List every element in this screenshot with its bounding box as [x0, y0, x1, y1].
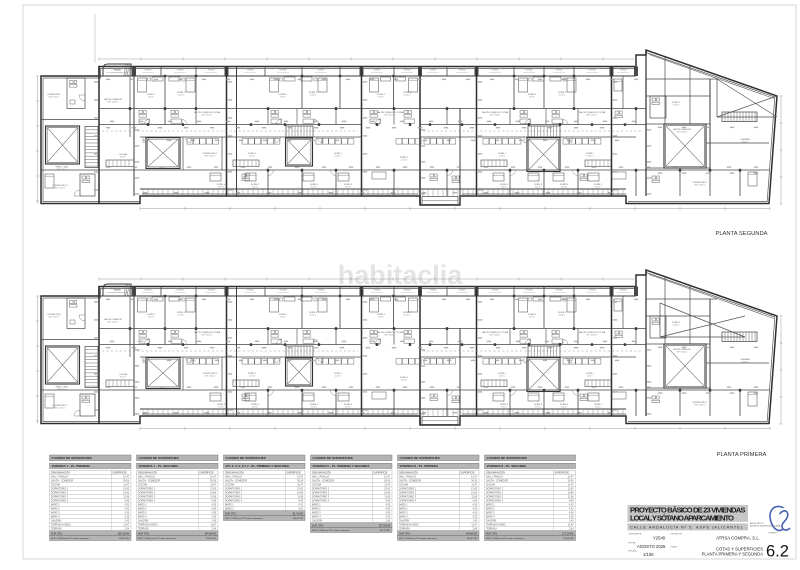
svg-text:18.20 m²: 18.20 m²	[742, 141, 749, 144]
svg-text:SUP: 11.20 m²: SUP: 11.20 m²	[49, 96, 60, 99]
svg-text:COCINA: COCINA	[399, 484, 409, 487]
svg-text:BAÑO 4: BAÑO 4	[312, 516, 321, 519]
svg-text:DORMITORIO 1: DORMITORIO 1	[486, 489, 504, 491]
svg-text:DORMITORIO 2: DORMITORIO 2	[486, 493, 504, 495]
svg-text:1.45: 1.45	[385, 521, 390, 523]
svg-text:SUP. ÚTIL: SUP. ÚTIL	[138, 532, 150, 535]
svg-text:12.47: 12.47	[210, 477, 217, 479]
svg-text:12.10 m²: 12.10 m²	[335, 155, 342, 158]
svg-text:GALERÍA: GALERÍA	[138, 520, 149, 523]
svg-text:SUP. CONS (con P.P. zonas comu: SUP. CONS (con P.P. zonas comunes)	[225, 518, 263, 520]
svg-text:GALERÍA: GALERÍA	[399, 520, 410, 523]
svg-text:11.47: 11.47	[384, 485, 390, 487]
svg-text:SUP. CONS (con P.P. zonas comu: SUP. CONS (con P.P. zonas comunes)	[138, 538, 176, 540]
svg-text:DORMITORIO 2: DORMITORIO 2	[51, 493, 69, 495]
svg-text:13.63: 13.63	[123, 489, 130, 491]
svg-text:BAÑO 2: BAÑO 2	[51, 508, 60, 511]
svg-text:BAÑO 3: BAÑO 3	[312, 512, 321, 515]
svg-text:10.66: 10.66	[123, 493, 130, 495]
svg-text:SALÓN COMEDOR: SALÓN COMEDOR	[673, 128, 691, 131]
svg-text:2.04: 2.04	[472, 529, 477, 531]
svg-text:9.20 m²: 9.20 m²	[501, 186, 507, 189]
svg-text:36.26: 36.26	[568, 481, 575, 483]
svg-text:BAÑO 1: BAÑO 1	[51, 504, 60, 507]
svg-text:DORMITORIO 2: DORMITORIO 2	[225, 493, 243, 495]
svg-text:DENOMINACIÓN: DENOMINACIÓN	[225, 472, 244, 475]
svg-text:9.20 m²: 9.20 m²	[311, 186, 317, 189]
svg-text:10.66: 10.66	[568, 493, 575, 495]
svg-text:4.35: 4.35	[211, 505, 216, 507]
svg-text:SUP: 26.40 m²: SUP: 26.40 m²	[676, 131, 688, 134]
svg-text:SALÓN - COMEDOR: SALÓN - COMEDOR	[312, 480, 334, 483]
svg-text:1.45: 1.45	[211, 521, 216, 523]
svg-text:9.45: 9.45	[472, 501, 477, 503]
svg-text:HALL / PASILLO: HALL / PASILLO	[486, 476, 503, 479]
svg-text:SUP. ÚTIL: SUP. ÚTIL	[486, 532, 498, 535]
svg-text:DORMITORIO 3: DORMITORIO 3	[399, 497, 417, 499]
svg-text:4.20: 4.20	[211, 509, 216, 511]
svg-text:SALÓN - COMEDOR: SALÓN - COMEDOR	[399, 480, 421, 483]
svg-text:NÚMERO: NÚMERO	[769, 532, 778, 535]
svg-text:4.35: 4.35	[472, 505, 477, 507]
svg-text:SUP: 24.30 m²: SUP: 24.30 m²	[107, 101, 119, 104]
svg-text:DORMITORIO 3: DORMITORIO 3	[225, 497, 243, 499]
svg-text:13.63: 13.63	[568, 489, 575, 491]
svg-text:4.36: 4.36	[569, 513, 574, 515]
svg-text:SUPERFICIE: SUPERFICIE	[373, 472, 388, 475]
svg-text:DORMITORIO 2: DORMITORIO 2	[312, 493, 330, 495]
svg-text:13.63: 13.63	[210, 489, 217, 491]
svg-text:DENOMINACIÓN: DENOMINACIÓN	[312, 472, 331, 475]
svg-text:BAÑO 2: BAÑO 2	[225, 508, 234, 511]
svg-text:TERRAZA: TERRAZA	[51, 528, 62, 531]
svg-text:BAÑO 2: BAÑO 2	[399, 508, 408, 511]
svg-text:12.47: 12.47	[471, 477, 478, 479]
svg-text:DENOMINACIÓN: DENOMINACIÓN	[51, 472, 70, 475]
svg-text:36.26: 36.26	[471, 481, 478, 483]
svg-text:11.87: 11.87	[210, 525, 216, 527]
svg-text:9.45: 9.45	[385, 501, 390, 503]
svg-text:BAÑO 3: BAÑO 3	[486, 512, 495, 515]
svg-text:106.92 M2: 106.92 M2	[293, 518, 304, 520]
svg-text:Y2540: Y2540	[653, 535, 666, 540]
svg-text:BAÑO 1: BAÑO 1	[312, 504, 321, 507]
svg-text:3.25: 3.25	[472, 517, 477, 519]
svg-text:11.08: 11.08	[210, 497, 216, 499]
svg-text:4.36: 4.36	[124, 513, 129, 515]
svg-text:4.35: 4.35	[385, 505, 390, 507]
svg-text:AGOSTO 2025: AGOSTO 2025	[637, 544, 666, 549]
svg-text:CUADRO DE SUPERFICIES: CUADRO DE SUPERFICIES	[487, 456, 527, 460]
svg-text:GALERÍA: GALERÍA	[51, 520, 62, 523]
svg-text:4.35: 4.35	[569, 505, 574, 507]
svg-text:BAÑO 3: BAÑO 3	[51, 512, 60, 515]
svg-text:36.26: 36.26	[210, 481, 217, 483]
svg-text:9.80 m²: 9.80 m²	[529, 96, 535, 99]
svg-text:DORMITORIO 1: DORMITORIO 1	[312, 489, 330, 491]
svg-text:9.80 m²: 9.80 m²	[280, 96, 286, 99]
svg-text:habitaclia: habitaclia	[338, 260, 464, 290]
svg-text:HALL / PASILLO: HALL / PASILLO	[399, 476, 416, 479]
svg-text:4.20: 4.20	[569, 509, 574, 511]
svg-text:4.36: 4.36	[472, 513, 477, 515]
svg-text:11.87: 11.87	[471, 525, 477, 527]
svg-text:AGUSTÍN RODRÍGUEZ OCAÑA: AGUSTÍN RODRÍGUEZ OCAÑA	[750, 525, 781, 528]
svg-text:PROMOTOR: PROMOTOR	[671, 534, 683, 536]
svg-text:SUP: 12.40 m²: SUP: 12.40 m²	[204, 155, 216, 158]
svg-text:VIVIENDA 1 - PL. SEGUNDA: VIVIENDA 1 - PL. SEGUNDA	[139, 464, 180, 468]
svg-text:ARQUITECTO: ARQUITECTO	[750, 522, 764, 525]
svg-text:9.45: 9.45	[211, 501, 216, 503]
svg-text:CUADRO DE SUPERFICIES: CUADRO DE SUPERFICIES	[226, 456, 266, 460]
svg-text:TERRAZA A DESC.: TERRAZA A DESC.	[399, 524, 420, 527]
svg-text:SUP. CONS (con P.P. zonas comu: SUP. CONS (con P.P. zonas comunes)	[486, 538, 524, 540]
svg-text:1.45: 1.45	[472, 521, 477, 523]
svg-text:SUP: 27.60 m²: SUP: 27.60 m²	[586, 114, 598, 117]
svg-text:SUP. ÚTIL: SUP. ÚTIL	[312, 524, 324, 527]
svg-text:9.45: 9.45	[298, 501, 303, 503]
svg-text:10.66: 10.66	[471, 493, 478, 495]
svg-text:LOCAL Y SÓTANO APARCAMIENTO: LOCAL Y SÓTANO APARCAMIENTO	[630, 514, 734, 523]
svg-text:12.47: 12.47	[384, 477, 391, 479]
svg-text:DORMITORIO 3: DORMITORIO 3	[312, 497, 330, 499]
svg-text:9.20 m²: 9.20 m²	[561, 186, 567, 189]
svg-text:SUPERFICIE: SUPERFICIE	[286, 472, 301, 475]
svg-text:81.43 M2: 81.43 M2	[293, 512, 304, 515]
svg-text:CUADRO DE SUPERFICIES: CUADRO DE SUPERFICIES	[139, 456, 179, 460]
svg-text:DORMITORIO 4: DORMITORIO 4	[225, 501, 243, 503]
svg-text:BAÑO 4: BAÑO 4	[399, 516, 408, 519]
svg-text:4.20: 4.20	[385, 509, 390, 511]
svg-text:4.20: 4.20	[472, 509, 477, 511]
svg-text:11.08: 11.08	[471, 497, 477, 499]
svg-text:TRAST. / ZAG.: TRAST. / ZAG.	[55, 166, 69, 169]
svg-text:SUP. ÚTIL: SUP. ÚTIL	[51, 532, 63, 535]
svg-text:12.10 m²: 12.10 m²	[401, 159, 408, 162]
svg-text:DORMITORIO 1: DORMITORIO 1	[399, 489, 417, 491]
svg-text:11.08: 11.08	[384, 497, 390, 499]
svg-text:10.10 m²: 10.10 m²	[404, 94, 411, 97]
svg-text:11.08: 11.08	[297, 497, 303, 499]
svg-text:BAÑO 2: BAÑO 2	[486, 508, 495, 511]
svg-text:SUP: 8.30 m²: SUP: 8.30 m²	[57, 168, 68, 171]
svg-text:TERRAZA A DESC.: TERRAZA A DESC.	[138, 524, 159, 527]
svg-text:11.87: 11.87	[123, 525, 129, 527]
svg-text:SALÓN - COMEDOR: SALÓN - COMEDOR	[486, 480, 508, 483]
svg-text:12.10 m²: 12.10 m²	[249, 155, 256, 158]
svg-text:4.35: 4.35	[124, 505, 129, 507]
svg-text:36.26: 36.26	[384, 481, 391, 483]
svg-text:DORMITORIO 4: DORMITORIO 4	[138, 501, 156, 503]
svg-text:DORMITORIO 4: DORMITORIO 4	[312, 501, 330, 503]
svg-text:SALÓN COMEDOR: SALÓN COMEDOR	[104, 98, 122, 101]
svg-text:11.47: 11.47	[568, 485, 574, 487]
svg-text:PLANTA SEGUNDA: PLANTA SEGUNDA	[715, 231, 767, 237]
svg-text:11.08: 11.08	[123, 497, 129, 499]
svg-text:11.87: 11.87	[568, 525, 574, 527]
svg-text:TERRAZA A DESC.: TERRAZA A DESC.	[486, 524, 507, 527]
svg-text:BAÑO 1: BAÑO 1	[225, 504, 234, 507]
svg-text:SUP. ÚTIL: SUP. ÚTIL	[225, 512, 237, 515]
svg-text:TERRAZA A DESC.: TERRAZA A DESC.	[51, 524, 72, 527]
svg-text:HALL / PASILLO: HALL / PASILLO	[138, 476, 155, 479]
svg-text:VIVIENDA 5 - PL. PRIMERA Y SEG: VIVIENDA 5 - PL. PRIMERA Y SEGUNDA	[313, 464, 371, 468]
svg-text:CUADRO DE SUPERFICIES: CUADRO DE SUPERFICIES	[52, 456, 92, 460]
svg-text:CUADRO DE SUPERFICIES: CUADRO DE SUPERFICIES	[400, 456, 440, 460]
svg-text:195.82 M2: 195.82 M2	[467, 538, 478, 540]
svg-text:9.60 m²: 9.60 m²	[345, 186, 351, 189]
svg-text:SALÓN COMEDOR COCINA: SALÓN COMEDOR COCINA	[377, 111, 404, 114]
svg-text:9.20 m²: 9.20 m²	[218, 186, 224, 189]
svg-text:SUPERFICIE: SUPERFICIE	[460, 472, 475, 475]
svg-text:HALL / PASILLO: HALL / PASILLO	[225, 476, 242, 479]
svg-text:COCINA: COCINA	[312, 484, 322, 487]
svg-text:BAÑO 3: BAÑO 3	[138, 512, 147, 515]
svg-text:SUP. ÚTIL: SUP. ÚTIL	[399, 532, 411, 535]
svg-text:VIVIENDA 8 - PL. SEGUNDA: VIVIENDA 8 - PL. SEGUNDA	[487, 464, 528, 468]
svg-text:8.90 m²: 8.90 m²	[120, 156, 126, 159]
svg-text:9.60 m²: 9.60 m²	[252, 186, 258, 189]
svg-text:12.47: 12.47	[123, 477, 130, 479]
svg-text:11.47: 11.47	[210, 485, 216, 487]
svg-text:DORMITORIO 1: DORMITORIO 1	[51, 489, 69, 491]
svg-text:9.80 m²: 9.80 m²	[148, 96, 154, 99]
svg-text:4.20: 4.20	[298, 509, 303, 511]
svg-text:DORMITORIO 3: DORMITORIO 3	[138, 497, 156, 499]
svg-text:9.45: 9.45	[124, 501, 129, 503]
svg-text:EXPEDIENTE: EXPEDIENTE	[629, 534, 642, 536]
svg-text:10.66: 10.66	[384, 493, 391, 495]
svg-text:2.04: 2.04	[211, 529, 216, 531]
svg-text:DORMITORIO 4: DORMITORIO 4	[51, 501, 69, 503]
svg-text:DORMITORIO 4: DORMITORIO 4	[399, 501, 417, 503]
svg-text:107.93 M2: 107.93 M2	[378, 524, 390, 527]
svg-text:DORMITORIO 1: DORMITORIO 1	[225, 489, 243, 491]
svg-text:DORMITORIO 3: DORMITORIO 3	[486, 497, 504, 499]
svg-text:BAÑO 1: BAÑO 1	[399, 504, 408, 507]
svg-text:4.20: 4.20	[124, 509, 129, 511]
svg-text:COCINA: COCINA	[138, 484, 148, 487]
svg-text:SUP: 12.80 m²: SUP: 12.80 m²	[694, 184, 706, 187]
svg-text:12.30 m²: 12.30 m²	[587, 155, 594, 158]
svg-text:DORMITORIO 3: DORMITORIO 3	[51, 497, 69, 499]
svg-text:BAÑO 1: BAÑO 1	[138, 504, 147, 507]
svg-text:SUP: 27.60 m²: SUP: 27.60 m²	[489, 114, 501, 117]
svg-text:COCINA: COCINA	[51, 484, 61, 487]
svg-text:36.26: 36.26	[297, 481, 304, 483]
svg-text:11.47: 11.47	[123, 485, 129, 487]
svg-text:DENOMINACIÓN: DENOMINACIÓN	[138, 472, 157, 475]
svg-text:DENOMINACIÓN: DENOMINACIÓN	[399, 472, 418, 475]
svg-text:4.36: 4.36	[385, 513, 390, 515]
svg-text:TERRAZA: TERRAZA	[486, 528, 497, 531]
svg-text:178.92 M2: 178.92 M2	[119, 538, 130, 540]
svg-text:CUADRO DE SUPERFICIES: CUADRO DE SUPERFICIES	[313, 456, 353, 460]
svg-text:DORMITORIO 1: DORMITORIO 1	[138, 489, 156, 491]
svg-text:GALERÍA: GALERÍA	[312, 520, 323, 523]
svg-text:BAÑO 2: BAÑO 2	[312, 508, 321, 511]
svg-text:12.47: 12.47	[568, 477, 575, 479]
svg-text:171.28 M2: 171.28 M2	[562, 532, 574, 535]
svg-text:SUP. CONS (con P.P. zonas comu: SUP. CONS (con P.P. zonas comunes)	[312, 530, 350, 532]
svg-text:1.45: 1.45	[569, 521, 574, 523]
svg-text:TERRAZA: TERRAZA	[740, 138, 750, 141]
svg-text:TERRAZA: TERRAZA	[138, 528, 149, 531]
svg-text:11.08: 11.08	[568, 497, 574, 499]
svg-text:3.25: 3.25	[385, 517, 390, 519]
svg-text:3.25: 3.25	[569, 517, 574, 519]
svg-text:SUPERFICIE: SUPERFICIE	[555, 472, 570, 475]
svg-text:VIVIENDA 8 - PL. PRIMERA: VIVIENDA 8 - PL. PRIMERA	[400, 464, 439, 468]
svg-text:9.60 m²: 9.60 m²	[378, 96, 384, 99]
svg-text:BAÑO 3: BAÑO 3	[399, 512, 408, 515]
svg-text:SUP. CONS (con P.P. zonas comu: SUP. CONS (con P.P. zonas comunes)	[399, 538, 437, 540]
svg-text:ATRSA COMPRA, S.L.: ATRSA COMPRA, S.L.	[716, 536, 760, 541]
svg-text:10.90 m²: 10.90 m²	[673, 104, 680, 107]
svg-text:BAÑO 4: BAÑO 4	[486, 516, 495, 519]
svg-text:COCINA: COCINA	[486, 484, 496, 487]
svg-text:2.04: 2.04	[124, 529, 129, 531]
svg-text:SUP: 10.10 m²: SUP: 10.10 m²	[54, 187, 66, 190]
svg-text:COCINA: COCINA	[225, 484, 235, 487]
svg-text:SUPERFICIE: SUPERFICIE	[112, 472, 127, 475]
svg-text:36.26: 36.26	[123, 481, 130, 483]
svg-text:SALÓN COMEDOR COCINA: SALÓN COMEDOR COCINA	[482, 111, 509, 114]
svg-text:SUP: 28.10 m²: SUP: 28.10 m²	[384, 114, 396, 117]
svg-text:12.47: 12.47	[297, 477, 304, 479]
svg-text:ESCALA: ESCALA	[629, 550, 638, 553]
svg-text:149.86 M2: 149.86 M2	[465, 532, 477, 535]
svg-text:BAÑO 4: BAÑO 4	[51, 516, 60, 519]
svg-text:144.09 M2: 144.09 M2	[204, 532, 216, 535]
svg-text:10.66: 10.66	[297, 493, 304, 495]
svg-text:3.25: 3.25	[211, 517, 216, 519]
svg-text:10.20 m²: 10.20 m²	[310, 94, 317, 97]
svg-text:BAÑO 2: BAÑO 2	[138, 508, 147, 511]
svg-text:10.20 m²: 10.20 m²	[559, 94, 566, 97]
svg-text:13.63: 13.63	[384, 489, 391, 491]
svg-text:3.25: 3.25	[124, 517, 129, 519]
svg-text:9.45: 9.45	[569, 501, 574, 503]
svg-text:DORMITORIO 4: DORMITORIO 4	[486, 501, 504, 503]
svg-text:VIV. 2, 3, 4, 6 Y 7 - PL. PRIM: VIV. 2, 3, 4, 6 Y 7 - PL. PRIMERA Y SEGU…	[226, 464, 290, 468]
svg-text:SALÓN COMEDOR COCINA: SALÓN COMEDOR COCINA	[579, 111, 606, 114]
svg-text:DORMITORIO 2: DORMITORIO 2	[399, 493, 417, 495]
svg-text:178.92 M2: 178.92 M2	[206, 538, 217, 540]
svg-text:FECHA: FECHA	[629, 541, 636, 544]
svg-text:SALÓN COMEDOR COCINA: SALÓN COMEDOR COCINA	[194, 111, 221, 114]
svg-text:SALÓN - COMEDOR: SALÓN - COMEDOR	[225, 480, 247, 483]
svg-text:141.16 M2: 141.16 M2	[380, 530, 391, 532]
svg-text:PLANTA PRIMERA Y SEGUNDA: PLANTA PRIMERA Y SEGUNDA	[702, 551, 764, 556]
svg-text:4.35: 4.35	[298, 505, 303, 507]
svg-text:DENOMINACIÓN: DENOMINACIÓN	[486, 472, 505, 475]
svg-text:SALÓN - COMEDOR: SALÓN - COMEDOR	[138, 480, 160, 483]
svg-text:2.04: 2.04	[569, 529, 574, 531]
svg-text:CALLE ANDALUCÍA Nº 5. ASPE (AL: CALLE ANDALUCÍA Nº 5. ASPE (ALICANTE)	[630, 525, 743, 530]
svg-text:DORMITORIO 2: DORMITORIO 2	[138, 493, 156, 495]
svg-text:SUP: 28.10 m²: SUP: 28.10 m²	[201, 114, 213, 117]
svg-text:1.45: 1.45	[124, 521, 129, 523]
svg-text:PLANTA PRIMERA: PLANTA PRIMERA	[717, 452, 767, 458]
svg-text:PLANO: PLANO	[671, 546, 678, 549]
svg-text:9.60 m²: 9.60 m²	[595, 186, 601, 189]
svg-text:SALÓN - COMEDOR: SALÓN - COMEDOR	[51, 480, 73, 483]
svg-text:BAÑO 1: BAÑO 1	[486, 504, 495, 507]
svg-text:TERRAZA: TERRAZA	[399, 528, 410, 531]
svg-text:BAÑO 4: BAÑO 4	[138, 516, 147, 519]
svg-text:4.36: 4.36	[211, 513, 216, 515]
svg-text:11.47: 11.47	[471, 485, 477, 487]
svg-text:HALL / PASILLO: HALL / PASILLO	[312, 476, 329, 479]
svg-text:6.2: 6.2	[766, 543, 789, 561]
svg-text:10.20 m²: 10.20 m²	[178, 94, 185, 97]
svg-text:VIVIENDA 1 - PL. PRIMERA: VIVIENDA 1 - PL. PRIMERA	[52, 464, 91, 468]
svg-text:COCINA: COCINA	[119, 153, 127, 156]
svg-text:10.66: 10.66	[210, 493, 217, 495]
svg-text:1/100: 1/100	[643, 552, 654, 557]
svg-text:11.47: 11.47	[297, 485, 303, 487]
svg-text:GALERÍA: GALERÍA	[486, 520, 497, 523]
svg-text:12.30 m²: 12.30 m²	[499, 155, 506, 158]
svg-text:194.82 M2: 194.82 M2	[563, 538, 574, 540]
svg-text:SUP. CONS (con P.P. zonas comu: SUP. CONS (con P.P. zonas comunes)	[51, 538, 89, 540]
svg-text:13.63: 13.63	[297, 489, 304, 491]
svg-text:13.63: 13.63	[471, 489, 478, 491]
svg-text:135.18 M2: 135.18 M2	[117, 532, 129, 535]
svg-text:HALL / PASILLO: HALL / PASILLO	[51, 476, 68, 479]
svg-text:9.60 m²: 9.60 m²	[535, 186, 541, 189]
svg-text:SUPERFICIE: SUPERFICIE	[199, 472, 214, 475]
